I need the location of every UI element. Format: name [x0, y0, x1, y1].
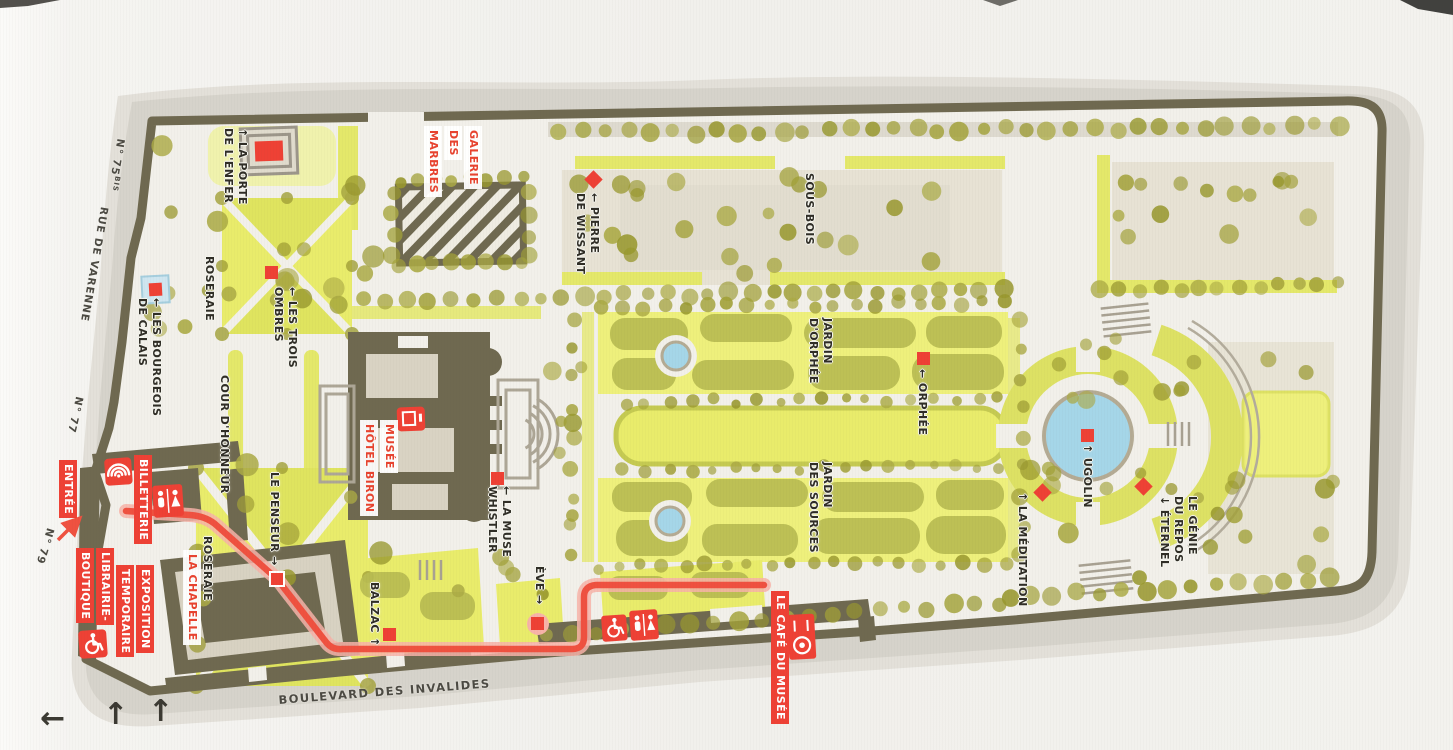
label-roseraie-sud: ROSERAIE [200, 536, 214, 601]
label-ugolin: ↑ UGOLIN [1080, 444, 1094, 508]
marker-musee-icon [397, 407, 426, 432]
label-cour-d-honneur: COUR D'HONNEUR [217, 375, 231, 494]
sources-pond [656, 507, 684, 535]
grande-pelouse [616, 408, 1006, 464]
label-eve: ÈVE → [532, 566, 546, 605]
label-pierre-de-wissant: ← PIERREDE WISSANT [573, 193, 601, 274]
north-gate-opening [368, 112, 424, 128]
label-billetterie: BILLETTERIE [132, 455, 152, 544]
marker-eve [527, 613, 549, 635]
label-balzac: BALZAC ↑ [367, 582, 381, 647]
label-le-penseur: LE PENSEUR → [267, 472, 281, 566]
label-librairie-boutique: LIBRAIRIE-BOUTIQUE [74, 548, 114, 625]
label-le-cafe-du-musee: LE CAFÉ DU MUSÉE [769, 591, 789, 724]
label-roseraie-nord: ROSERAIE [202, 256, 216, 321]
photo-edge-artifacts [0, 0, 1453, 15]
label-les-trois-ombres: ← LES TROISOMBRES [271, 287, 299, 368]
label-sous-bois: SOUS-BOIS [802, 173, 816, 245]
marker-orphee [917, 352, 930, 365]
label-la-muse-whistler: ← LA MUSEWHISTLER [485, 486, 513, 557]
label-jardin-des-sources: JARDINDES SOURCES [806, 462, 834, 553]
label-le-genie-du-repos-eternel: LE GÉNIEDU REPOS↓ ÉTERNEL [1157, 496, 1199, 567]
marker-les-trois-ombres [265, 266, 278, 279]
label-musee-hotel-biron: MUSÉEHÔTEL BIRON [358, 420, 398, 516]
arrow-up-icon-2: ↑ [148, 697, 173, 727]
entrance-arcs-icon [104, 457, 133, 486]
label-orphee: ← ORPHÉE [915, 369, 929, 435]
restrooms-icon [152, 484, 184, 518]
label-galerie-des-marbres: GALERIEDESMARBRES [422, 126, 482, 197]
wheelchair-access-icon [78, 629, 108, 659]
label-la-meditation: ↑ LA MÉDITATION [1015, 492, 1029, 607]
wheelchair-access-icon-2 [601, 614, 628, 642]
label-entree: ENTRÉE [57, 460, 77, 518]
label-jardin-d-orphee: JARDIND'ORPHÉE [806, 318, 834, 384]
musee-rodin-garden-map: ↑ LA PORTEDE L'ENFER ROSERAIE ← LES TROI… [0, 0, 1453, 750]
arrow-up-icon: ↑ [103, 700, 128, 730]
label-la-porte-de-l-enfer: ↑ LA PORTEDE L'ENFER [221, 128, 249, 205]
marker-ugolin [1081, 429, 1094, 442]
label-la-chapelle: LA CHAPELLE [181, 550, 201, 645]
marker-la-muse-whistler [491, 472, 504, 485]
marker-le-penseur [270, 572, 284, 586]
entrance-arrow-icon [58, 518, 80, 540]
restrooms-icon-2 [629, 609, 659, 641]
label-les-bourgeois-de-calais: ← LES BOURGEOISDE CALAIS [135, 298, 163, 416]
label-exposition-temporaire: EXPOSITIONTEMPORAIRE [114, 565, 154, 657]
arrow-west-icon: ← [40, 704, 65, 734]
orphee-pond [662, 342, 690, 370]
marker-balzac [383, 628, 396, 641]
cafe-icon [787, 614, 816, 660]
